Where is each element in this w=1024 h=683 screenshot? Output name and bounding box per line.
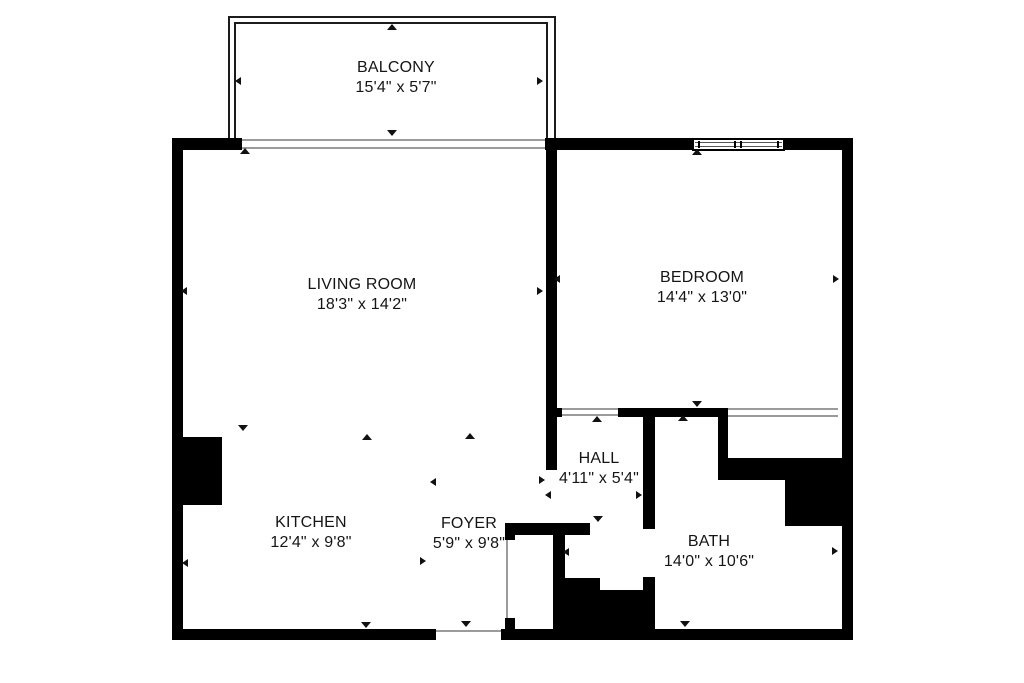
room-name: LIVING ROOM [308,275,417,295]
foyer-closet-opening-line [506,540,508,618]
wall-hall-south [505,523,590,535]
dimension-arrow-down [692,401,702,407]
wall-bedroom-closet-south [718,458,847,480]
bedroom-door-opening-line-top [562,408,618,410]
dimension-arrow-left [545,491,551,499]
dimension-arrow-left [182,559,188,567]
outer-wall-top-left [172,138,242,150]
room-label-bath: BATH 14'0" x 10'6" [664,532,754,572]
dimension-arrow-left [430,478,436,486]
dimension-arrow-left [181,287,187,295]
wall-bedroom-closet-west [718,408,728,460]
closet-sliding-door-line-top [728,408,838,410]
floor-plan: BALCONY 15'4" x 5'7" LIVING ROOM 18'3" x… [0,0,1024,683]
wall-foyer-east-top-stub [505,523,515,540]
room-dimensions: 14'4" x 13'0" [657,288,747,308]
window-rail-top [695,142,782,143]
dimension-arrow-down [387,130,397,136]
outer-wall-right [842,138,853,640]
bedroom-window [692,138,785,151]
room-label-living-room: LIVING ROOM 18'3" x 14'2" [308,275,417,315]
window-mullion-center-a [734,141,736,148]
window-mullion-right [777,141,779,148]
dimension-arrow-down [238,425,248,431]
wall-bath-step-a [565,578,600,640]
wall-bath-step-b [600,590,645,640]
wall-foyer-east-bottom-stub [505,618,515,640]
room-label-kitchen: KITCHEN 12'4" x 9'8" [270,513,351,553]
wall-bedroom-south [618,408,728,417]
dimension-arrow-right [539,476,545,484]
outer-wall-bottom-left [172,629,436,640]
room-name: HALL [559,449,639,469]
dimension-arrow-up [387,24,397,30]
room-dimensions: 5'9" x 9'8" [433,534,505,554]
kitchen-appliance-block [180,437,222,505]
room-dimensions: 12'4" x 9'8" [270,533,351,553]
wall-bedroom-south-stub [546,408,562,417]
room-name: BALCONY [355,58,436,78]
wall-hall-east-upper [643,408,655,529]
wall-living-bedroom-divider [546,150,557,470]
window-mullion-center-b [740,141,742,148]
room-name: BATH [664,532,754,552]
dimension-arrow-up [240,148,250,154]
room-label-hall: HALL 4'11" x 5'4" [559,449,639,489]
room-dimensions: 14'0" x 10'6" [664,552,754,572]
dimension-arrow-up [692,149,702,155]
dimension-arrow-up [592,416,602,422]
dimension-arrow-right [832,547,838,555]
dimension-arrow-right [636,491,642,499]
dimension-arrow-left [235,77,241,85]
balcony-sliding-door-line-bottom [242,147,545,149]
room-name: KITCHEN [270,513,351,533]
balcony-sliding-door-line-top [242,139,545,141]
dimension-arrow-up [678,415,688,421]
dimension-arrow-right [420,557,426,565]
wall-foyer-closet-east [553,523,565,640]
dimension-arrow-right [537,77,543,85]
room-label-foyer: FOYER 5'9" x 9'8" [433,514,505,554]
closet-sliding-door-line-bottom [728,415,838,417]
room-dimensions: 18'3" x 14'2" [308,295,417,315]
dimension-arrow-up [362,434,372,440]
bedroom-door-opening-line-bottom [562,414,618,416]
wall-shower-block [785,480,847,526]
room-label-bedroom: BEDROOM 14'4" x 13'0" [657,268,747,308]
dimension-arrow-down [680,621,690,627]
dimension-arrow-down [593,516,603,522]
dimension-arrow-left [554,275,560,283]
dimension-arrow-right [537,287,543,295]
dimension-arrow-left [563,548,569,556]
dimension-arrow-down [461,621,471,627]
window-rail-bottom [695,146,782,147]
dimension-arrow-down [361,622,371,628]
dimension-arrow-up [465,433,475,439]
room-name: BEDROOM [657,268,747,288]
room-name: FOYER [433,514,505,534]
wall-bath-west-lower [643,577,655,640]
room-dimensions: 4'11" x 5'4" [559,469,639,489]
entry-door-opening-line [436,630,501,632]
outer-wall-top-middle [545,138,692,150]
room-label-balcony: BALCONY 15'4" x 5'7" [355,58,436,98]
dimension-arrow-right [833,275,839,283]
window-mullion-left [698,141,700,148]
room-dimensions: 15'4" x 5'7" [355,78,436,98]
